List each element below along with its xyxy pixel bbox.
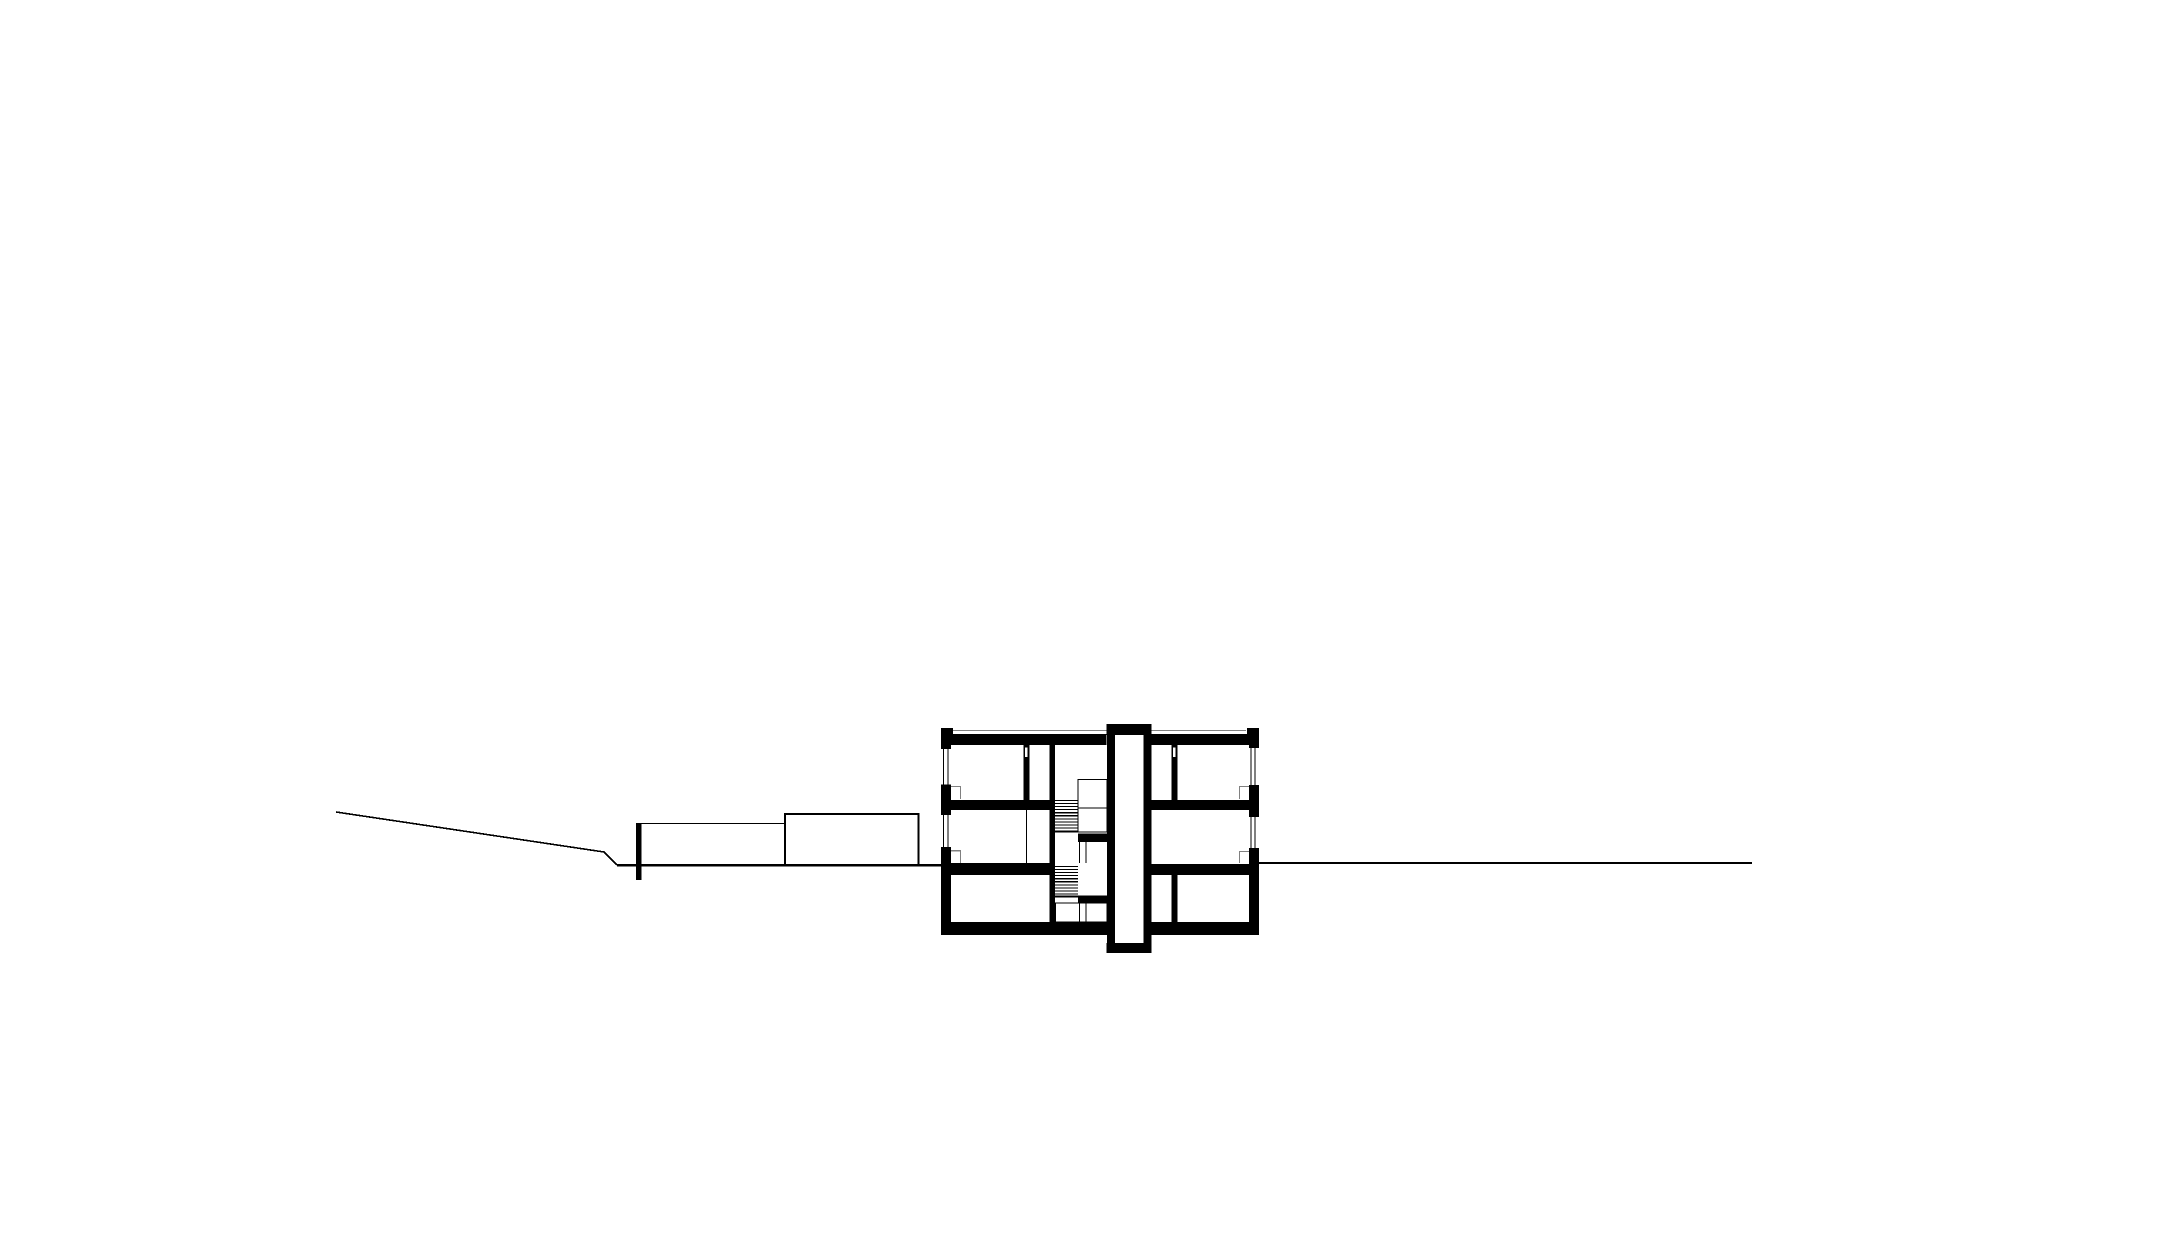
floor-slab-upper-left — [951, 800, 1055, 810]
window-reveal-left-upper — [951, 787, 961, 800]
foundation-slab-right — [1144, 922, 1260, 935]
terrain-slope-line — [336, 812, 617, 865]
stair-basement-box — [1056, 903, 1108, 922]
building-cross-section-drawing — [0, 0, 2182, 1260]
shaft-head — [1107, 724, 1152, 735]
ground-slab-left — [951, 863, 1055, 875]
stair-half-landing-lower — [1078, 896, 1107, 903]
window-reveal-right-lower — [1240, 852, 1250, 864]
shaft-wall-left — [1107, 735, 1115, 943]
stair-core-wall — [1050, 745, 1056, 922]
drawing-sheet — [0, 0, 2182, 1260]
retaining-wall — [636, 823, 642, 880]
foundation-slab-left — [941, 922, 1115, 935]
shaft-pit-slab — [1107, 943, 1152, 953]
ground-slab-right — [1152, 864, 1250, 875]
roof-slab-left — [941, 734, 1107, 745]
window-left-upper-opening — [941, 749, 951, 785]
stair-half-landing-upper — [1078, 834, 1107, 842]
shaft-wall-right — [1144, 735, 1152, 943]
window-left-lower-opening — [941, 815, 951, 847]
stair-upper-landing-box — [1078, 780, 1107, 833]
window-reveal-right-upper — [1240, 787, 1250, 800]
door-leaf-upper-right — [1173, 747, 1177, 758]
roof-slab-right — [1152, 734, 1260, 745]
annex-outline — [785, 814, 919, 866]
window-reveal-left-lower — [951, 851, 961, 863]
floor-slab-upper-right — [1152, 800, 1250, 810]
partition-basement-right — [1172, 875, 1178, 922]
parapet-block-right — [1247, 728, 1259, 745]
door-leaf-upper-left — [1025, 747, 1029, 758]
parapet-block-left — [941, 728, 953, 745]
